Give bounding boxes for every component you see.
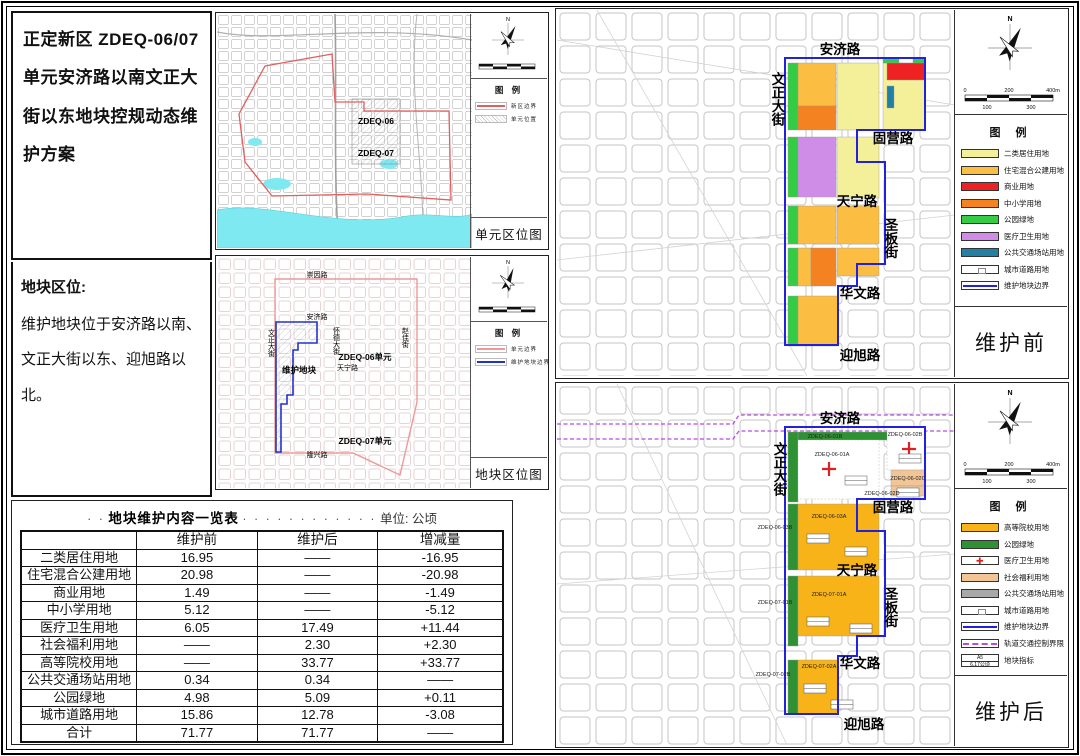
- before-maintenance-panel: 安济路 文正大街 固营路 天宁路 圣板街 华文路 迎旭路 N 0 200: [555, 8, 1069, 379]
- legend-item: 城市道路用地: [961, 264, 1061, 275]
- location-text-line1: 维护地块位于安济路以南、: [21, 307, 202, 342]
- unit-06-label: ZDEQ-06: [358, 116, 394, 126]
- svg-text:N: N: [1007, 16, 1012, 23]
- svg-text:0: 0: [963, 88, 966, 94]
- table-row: 二类居住用地16.95——-16.95: [21, 549, 503, 567]
- legend-item: 维护地块边界: [961, 280, 1061, 291]
- legend-item: 轨道交通控制界限: [961, 638, 1061, 649]
- block-map-legend: 图 例 单元边界 维护地块边界: [471, 321, 547, 458]
- before-map-compass-box: N 0 200 400m 100 300: [955, 10, 1067, 115]
- scale-bar: 0 200 400m 100 300: [963, 462, 1060, 485]
- title-section: 正定新区 ZDEQ-06/07单元安济路以南文正大街以东地块控规动态维护方案: [11, 11, 212, 260]
- maintained-plot-label: 维护地块: [282, 365, 317, 375]
- table-unit: 单位: 公顷: [380, 512, 437, 526]
- road-label-wenzheng: 文正大街: [770, 71, 787, 128]
- after-map-legend: 图 例 高等院校用地 公园绿地 ✚医疗卫生用地 社会福利用地 公共交通场站用地 …: [955, 488, 1067, 676]
- block-map-sidebar: N 图 例 单元边界 维护地块边界 地块区位图: [470, 257, 547, 488]
- location-text-line2: 文正大街以东、迎旭路以北。: [21, 342, 202, 413]
- legend-item: 公园绿地: [961, 539, 1061, 550]
- svg-text:ZDEQ-06-01B: ZDEQ-06-01B: [808, 434, 843, 440]
- svg-text:N: N: [1007, 390, 1012, 397]
- boundary-line-swatch: [475, 102, 507, 110]
- table-title: 地块维护内容一览表: [108, 511, 239, 526]
- after-map-title: 维护后: [955, 676, 1067, 746]
- unit-boundary-swatch: [475, 345, 507, 353]
- before-map-sidebar: N 0 200 400m 100 300 图 例 二类居住用地 住: [954, 10, 1067, 377]
- road-label-anji: 安济路: [307, 312, 328, 321]
- landuse-swatch: [961, 523, 999, 532]
- scale-bar: [479, 307, 535, 312]
- svg-text:200: 200: [1004, 462, 1013, 468]
- road-label-wenzheng: 文正大街: [268, 328, 276, 358]
- road-label-tianning: 天宁路: [837, 562, 878, 578]
- location-section: 地块区位: 维护地块位于安济路以南、 文正大街以东、迎旭路以北。: [11, 262, 212, 497]
- svg-text:100: 100: [982, 479, 991, 485]
- road-label-yingxu: 迎旭路: [840, 347, 881, 363]
- plot-boundary-swatch: [475, 358, 507, 366]
- location-heading: 地块区位:: [21, 276, 202, 297]
- legend-title: 图 例: [961, 498, 1061, 514]
- landuse-swatch: [961, 166, 999, 175]
- legend-item: ✚医疗卫生用地: [961, 555, 1061, 566]
- svg-text:ZDEQ-06-03B: ZDEQ-06-03B: [758, 525, 793, 531]
- legend-item: A5 6.17公顷 地块指标: [961, 654, 1061, 667]
- landuse-swatch: [961, 182, 999, 191]
- legend-item: 单元位置: [475, 115, 543, 123]
- unit-map-sidebar: N 图 例 新区边界 单元位置 单元区位图: [470, 14, 547, 248]
- svg-text:300: 300: [1026, 105, 1035, 111]
- svg-text:ZDEQ-07-01A: ZDEQ-07-01A: [812, 592, 847, 598]
- plot-boundary-swatch: [961, 622, 999, 631]
- legend-item: 住宅混合公建用地: [961, 165, 1061, 176]
- landuse-swatch: [961, 248, 999, 257]
- maintenance-table: 维护前 维护后 增减量 二类居住用地16.95——-16.95 住宅混合公建用地…: [20, 530, 504, 743]
- svg-text:N: N: [506, 17, 510, 23]
- table-row: 公共交通场站用地0.340.34——: [21, 672, 503, 690]
- road-label-shengban: 圣板街: [883, 587, 900, 629]
- table-title-line: · · 地块维护内容一览表 · · · · · · · · · · · · 单位…: [20, 507, 504, 527]
- legend-item: 公园绿地: [961, 214, 1061, 225]
- unit-map-title: 单元区位图: [471, 218, 547, 248]
- legend-item: 商业用地: [961, 181, 1061, 192]
- road-label-anji: 安济路: [820, 41, 861, 57]
- road-label-zhaojia: 赵佳街: [402, 326, 410, 349]
- table-row: 医疗卫生用地6.0517.49+11.44: [21, 619, 503, 637]
- north-arrow-icon: N: [492, 17, 524, 55]
- road-label-chongyin: 崇因路: [307, 270, 328, 279]
- before-map-title: 维护前: [955, 307, 1067, 377]
- svg-text:ZDEQ-07-02B: ZDEQ-07-02B: [756, 672, 791, 678]
- block-map-title: 地块区位图: [471, 458, 547, 488]
- legend-title: 图 例: [961, 124, 1061, 140]
- svg-text:ZDEQ-06-03A: ZDEQ-06-03A: [812, 514, 847, 520]
- table-row: 城市道路用地15.8612.78-3.08: [21, 707, 503, 725]
- svg-text:ZDEQ-06-02C: ZDEQ-06-02C: [890, 476, 925, 482]
- landuse-swatch: [961, 540, 999, 549]
- road-label-wenzheng: 文正大街: [772, 441, 789, 498]
- legend-item: 单元边界: [475, 345, 543, 353]
- landuse-swatch: [961, 573, 999, 582]
- legend-item: 公共交通场站用地: [961, 247, 1061, 258]
- before-map: 安济路 文正大街 固营路 天宁路 圣板街 华文路 迎旭路: [557, 10, 955, 376]
- legend-title: 图 例: [475, 84, 543, 96]
- north-arrow-icon: N: [988, 390, 1032, 444]
- after-map: ZDEQ-06-01B ZDEQ-06-01A ZDEQ-06-02B ZDEQ…: [557, 384, 955, 745]
- landuse-swatch: [961, 149, 999, 158]
- svg-text:ZDEQ-07-01B: ZDEQ-07-01B: [758, 600, 793, 606]
- landuse-swatch: [961, 589, 999, 598]
- svg-text:ZDEQ-07-02A: ZDEQ-07-02A: [802, 664, 837, 670]
- road-label-anji: 安济路: [820, 410, 861, 426]
- svg-text:400m: 400m: [1046, 88, 1060, 94]
- hatch-swatch: [475, 115, 507, 123]
- plot-boundary-swatch: [961, 281, 999, 290]
- road-label-tianning: 天宁路: [837, 193, 878, 209]
- road-label-guying: 固营路: [873, 499, 914, 515]
- after-map-sidebar: N 0 200 400m 100 300 图 例 高等院校用地 公: [954, 384, 1067, 746]
- legend-title: 图 例: [475, 327, 543, 339]
- svg-text:400m: 400m: [1046, 462, 1060, 468]
- rail-control-swatch: [961, 639, 999, 648]
- table-row: 住宅混合公建用地20.98——-20.98: [21, 567, 503, 585]
- block-location-panel: 崇因路 安济路 文正大街 怀德大街 赵佳街 天宁路 隆兴路 维护地块 ZDEQ-…: [215, 255, 549, 490]
- road-label-shengban: 圣板街: [883, 218, 900, 260]
- legend-item: 高等院校用地: [961, 522, 1061, 533]
- road-label-tianning: 天宁路: [337, 363, 358, 372]
- svg-text:N: N: [506, 260, 510, 266]
- table-row: 社会福利用地——2.30+2.30: [21, 637, 503, 655]
- road-landuse-swatch: [961, 606, 999, 615]
- road-landuse-swatch: [961, 265, 999, 274]
- legend-item: 二类居住用地: [961, 148, 1061, 159]
- table-row: 商业用地1.49——-1.49: [21, 584, 503, 602]
- north-arrow-icon: N: [988, 16, 1032, 70]
- landuse-swatch: [961, 232, 999, 241]
- table-total-row: 合计71.7771.77——: [21, 724, 503, 742]
- legend-item: 医疗卫生用地: [961, 231, 1061, 242]
- legend-item: 公共交通场站用地: [961, 588, 1061, 599]
- svg-text:200: 200: [1004, 88, 1013, 94]
- table-header-row: 维护前 维护后 增减量: [21, 531, 503, 549]
- block-map-compass-box: N: [471, 257, 547, 322]
- road-label-huawen: 华文路: [840, 285, 881, 301]
- svg-text:ZDEQ-06-01A: ZDEQ-06-01A: [815, 452, 850, 458]
- road-label-huawen: 华文路: [840, 655, 881, 671]
- legend-item: 维护地块边界: [961, 621, 1061, 632]
- table-row: 中小学用地5.12——-5.12: [21, 602, 503, 620]
- legend-item: 新区边界: [475, 102, 543, 110]
- road-label-longxing: 隆兴路: [307, 450, 328, 459]
- unit-06-label: ZDEQ-06单元: [339, 352, 392, 362]
- after-map-compass-box: N 0 200 400m 100 300: [955, 384, 1067, 489]
- svg-text:0: 0: [963, 462, 966, 468]
- road-label-yingxu: 迎旭路: [844, 716, 885, 732]
- before-map-legend: 图 例 二类居住用地 住宅混合公建用地 商业用地 中小学用地 公园绿地 医疗卫生…: [955, 114, 1067, 307]
- hospital-swatch: ✚: [961, 556, 999, 565]
- legend-item: 城市道路用地: [961, 605, 1061, 616]
- svg-text:ZDEQ-06-02B: ZDEQ-06-02B: [888, 432, 923, 438]
- legend-item: 维护地块边界: [475, 358, 543, 366]
- unit-location-map: ZDEQ-06 ZDEQ-07: [217, 14, 472, 248]
- unit-map-compass-box: N: [471, 14, 547, 79]
- legend-item: 中小学用地: [961, 198, 1061, 209]
- unit-07-label: ZDEQ-07单元: [339, 436, 392, 446]
- table-row: 高等院校用地——33.77+33.77: [21, 654, 503, 672]
- scale-bar: 0 200 400m 100 300: [963, 88, 1060, 111]
- unit-area-hatched: ZDEQ-06 ZDEQ-07: [352, 99, 400, 164]
- road-label-guying: 固营路: [873, 130, 914, 146]
- landuse-swatch: [961, 199, 999, 208]
- block-location-map: 崇因路 安济路 文正大街 怀德大街 赵佳街 天宁路 隆兴路 维护地块 ZDEQ-…: [217, 257, 472, 488]
- north-arrow-icon: N: [492, 260, 524, 298]
- document-title: 正定新区 ZDEQ-06/07单元安济路以南文正大街以东地块控规动态维护方案: [23, 21, 200, 174]
- plot-indicator-swatch: A5 6.17公顷: [961, 654, 999, 667]
- unit-map-legend: 图 例 新区边界 单元位置: [471, 78, 547, 218]
- unit-07-label: ZDEQ-07: [358, 148, 394, 158]
- svg-text:300: 300: [1026, 479, 1035, 485]
- svg-text:ZDEQ-06-02D: ZDEQ-06-02D: [864, 491, 899, 497]
- legend-item: 社会福利用地: [961, 572, 1061, 583]
- unit-location-panel: ZDEQ-06 ZDEQ-07 N: [215, 12, 549, 250]
- scale-bar: [479, 64, 535, 69]
- landuse-swatch: [961, 215, 999, 224]
- svg-text:100: 100: [982, 105, 991, 111]
- maintenance-table-section: · · 地块维护内容一览表 · · · · · · · · · · · · 单位…: [11, 500, 513, 745]
- after-maintenance-panel: ZDEQ-06-01B ZDEQ-06-01A ZDEQ-06-02B ZDEQ…: [555, 382, 1069, 748]
- table-row: 公园绿地4.985.09+0.11: [21, 689, 503, 707]
